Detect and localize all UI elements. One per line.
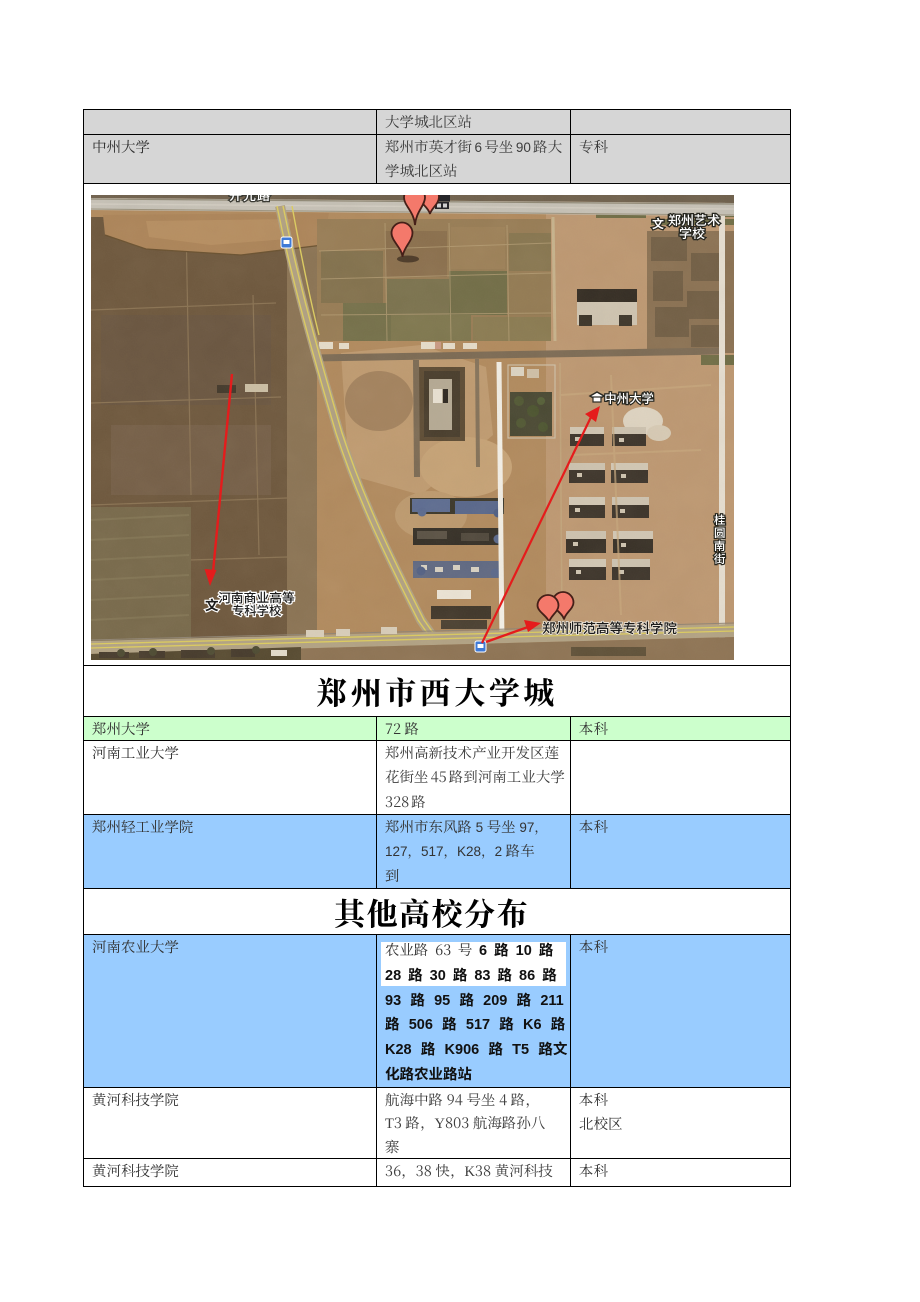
svg-text:专科学校: 专科学校 [232, 601, 282, 619]
svg-text:文: 文 [205, 594, 219, 614]
svg-text:学校: 学校 [679, 223, 705, 242]
svg-text:街: 街 [714, 551, 726, 567]
svg-text:郑州师范高等专科学院: 郑州师范高等专科学院 [542, 617, 677, 637]
svg-text:中州大学: 中州大学 [604, 388, 655, 407]
svg-text:文: 文 [652, 215, 665, 232]
svg-text:开元路: 开元路 [229, 195, 271, 204]
